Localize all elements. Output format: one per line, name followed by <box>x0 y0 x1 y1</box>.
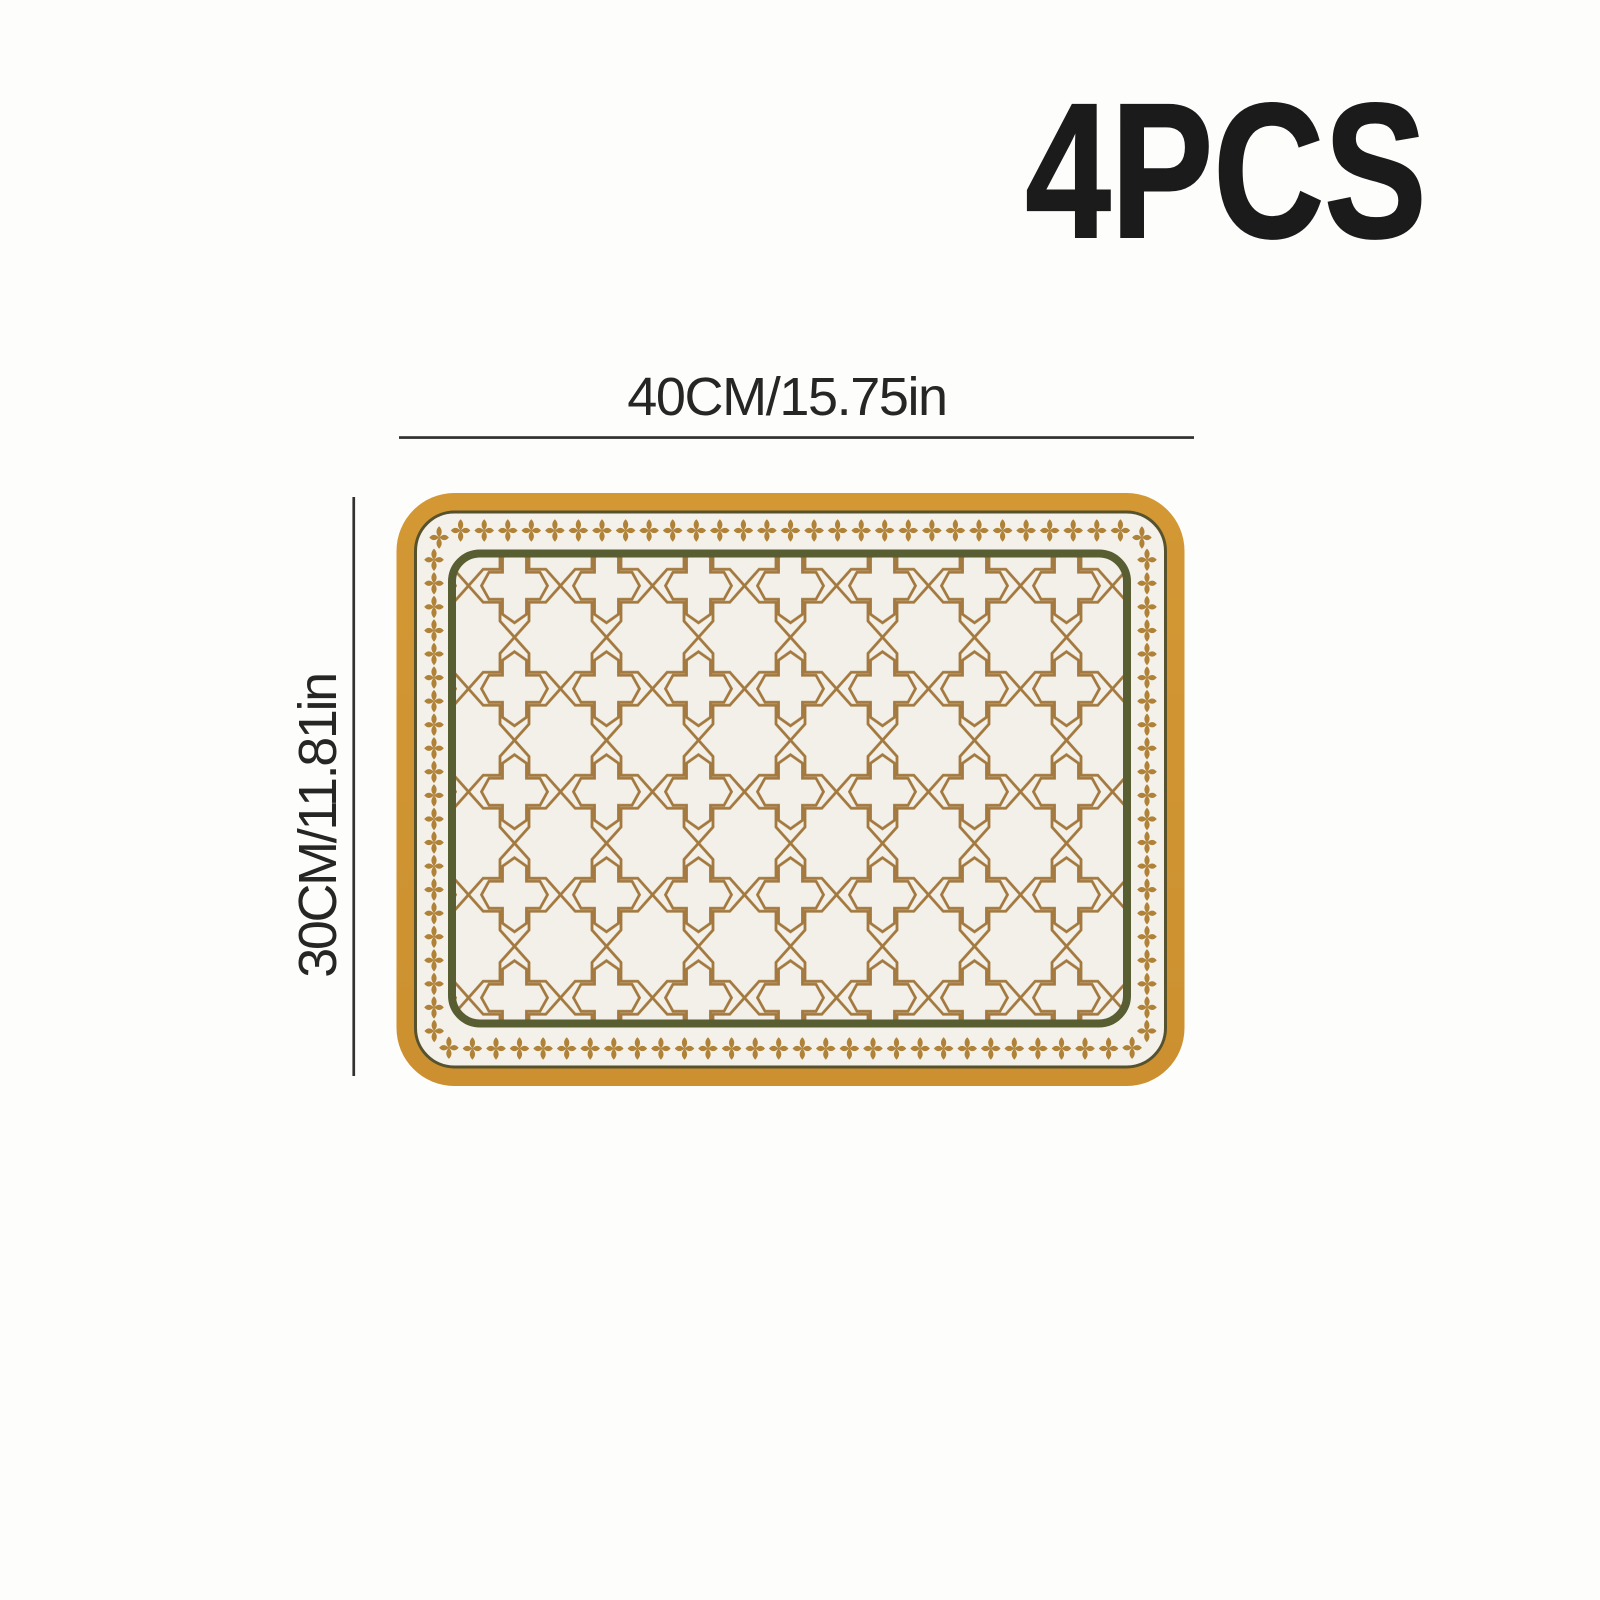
svg-text:30CM/11.81in: 30CM/11.81in <box>288 674 348 977</box>
svg-text:4PCS: 4PCS <box>1025 64 1426 278</box>
svg-text:40CM/15.75in: 40CM/15.75in <box>627 367 946 427</box>
